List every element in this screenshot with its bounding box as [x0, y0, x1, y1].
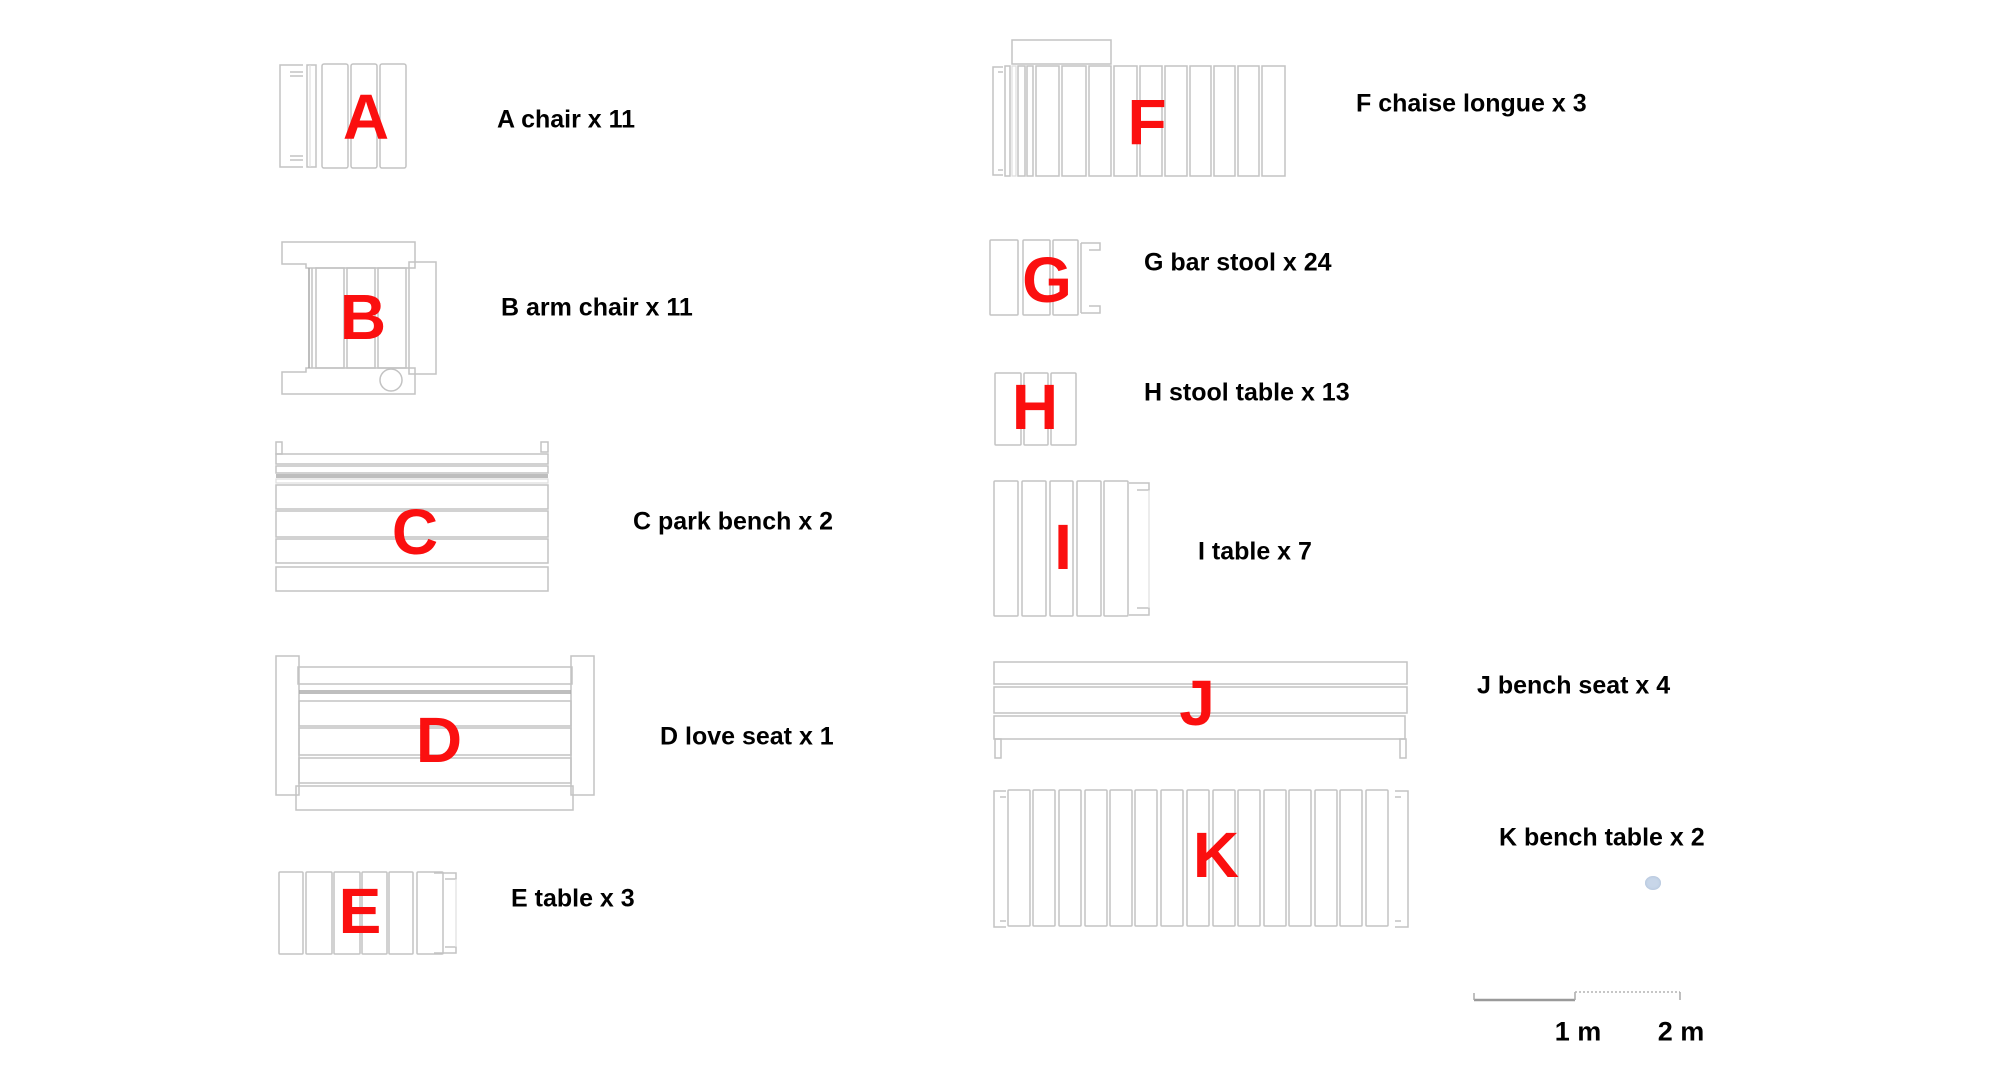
item-letter-b: B	[340, 285, 386, 349]
item-label-k: K bench table x 2	[1499, 826, 1705, 851]
item-label-d: D love seat x 1	[660, 725, 834, 750]
item-label-a: A chair x 11	[497, 108, 635, 133]
item-label-h: H stool table x 13	[1144, 381, 1350, 406]
artifact-dot	[1645, 876, 1661, 890]
scale-label-2m: 2 m	[1658, 1019, 1705, 1046]
furniture-drawing-i	[992, 479, 1152, 619]
item-label-b: B arm chair x 11	[501, 296, 693, 321]
item-label-g: G bar stool x 24	[1144, 251, 1332, 276]
item-label-e: E table x 3	[511, 887, 635, 912]
item-letter-k: K	[1193, 823, 1239, 887]
scale-label-1m: 1 m	[1555, 1019, 1602, 1046]
item-label-j: J bench seat x 4	[1477, 674, 1670, 699]
item-label-f: F chaise longue x 3	[1356, 92, 1587, 117]
item-letter-h: H	[1012, 375, 1058, 439]
item-letter-d: D	[416, 708, 462, 772]
item-letter-c: C	[392, 500, 438, 564]
furniture-legend-page: A A chair x 11 B B arm chair x 11	[0, 0, 2000, 1084]
item-letter-a: A	[343, 85, 389, 149]
item-label-c: C park bench x 2	[633, 510, 833, 535]
scale-bar	[1462, 980, 1692, 1006]
item-letter-i: I	[1054, 515, 1072, 579]
item-letter-j: J	[1179, 671, 1215, 735]
item-letter-e: E	[339, 879, 382, 943]
item-letter-g: G	[1022, 248, 1072, 312]
item-label-i: I table x 7	[1198, 540, 1312, 565]
item-letter-f: F	[1127, 90, 1166, 154]
